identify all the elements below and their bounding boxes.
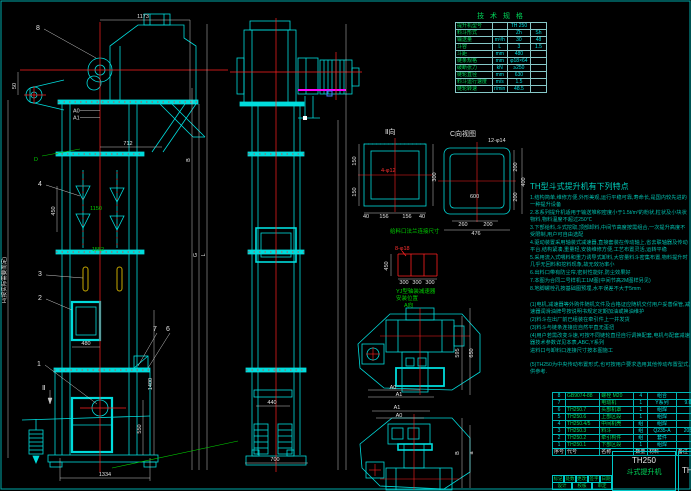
front-view-centerlines	[20, 22, 228, 472]
dim-476: 476	[471, 231, 480, 237]
front-view-dimension-texts: 1173 712 A0 A1 50 450 480 1334 550 1400 …	[0, 14, 207, 478]
table-row: 料斗运行速度 m/s 1.5	[456, 79, 547, 86]
detail-section-II-dims	[359, 144, 433, 213]
table-row: 破断张力 kN ≥250	[456, 65, 547, 72]
dim-a0: A0	[73, 109, 80, 115]
spec-cell	[530, 58, 546, 65]
bom-cell: 4	[634, 393, 648, 400]
bom-cell: 电动机	[600, 400, 634, 407]
dim-550: 550	[137, 424, 143, 433]
title-block-model-box: TH250 斗式提升机	[612, 451, 676, 491]
section-II-marker: Ⅱ	[42, 385, 45, 392]
dim-400: 400	[521, 177, 527, 186]
spec-cell: 30	[507, 37, 530, 44]
bom-cell: TH250.4/5	[566, 421, 600, 428]
spec-cell	[492, 30, 507, 37]
dim-150a: 150	[352, 156, 358, 165]
notes-title: TH型斗式提升机有下列特点	[530, 181, 690, 192]
note-line: (2)料斗在出厂前已组装在牵引件上一并发货	[530, 317, 690, 324]
note-line: 4.驱动装置采用轴装式减速器,直接套装在传动轴上,省去联轴器及传动平台,结构紧凑…	[530, 240, 690, 254]
spec-cell: 提升机型号	[456, 23, 493, 30]
bom-cell	[566, 400, 600, 407]
bom-cell	[676, 407, 691, 414]
bom-cell: Q235-A	[648, 428, 677, 435]
spec-cell: Sh	[530, 30, 546, 37]
spec-cell: 630	[507, 72, 530, 79]
bom-cell: TH250.3	[566, 428, 600, 435]
bom-cell: 组	[634, 428, 648, 435]
bom-cell	[676, 421, 691, 428]
spec-cell: 链条规格	[456, 58, 493, 65]
table-row: 6 TH250.7 头部机罩 1 组焊	[553, 407, 691, 414]
spec-cell: 破断张力	[456, 65, 493, 72]
feature-notes: TH型斗式提升机有下列特点 1.结构简单,维修方便,外形美观,运行平稳可靠,寿命…	[530, 181, 690, 393]
table-row: 提升机型号 TH 250	[456, 23, 547, 30]
dim-650: 650	[469, 348, 475, 357]
spec-cell	[530, 51, 546, 58]
drawing-model: TH250	[613, 456, 675, 465]
dim-A1-top: A1	[396, 392, 403, 398]
technical-spec-table: 技 术 规 格 提升机型号 TH 250 料斗形式 Zh Sh 输送量 m³/h…	[455, 11, 547, 93]
table-row: 链条规格 mm φ18×64	[456, 58, 547, 65]
bom-cell: GB9074-88	[566, 393, 600, 400]
table-row: 输送量 m³/h 30 48	[456, 37, 547, 44]
dim-156a: 156	[379, 214, 388, 220]
spec-cell: mm	[492, 51, 507, 58]
title-block: TH250 斗式提升机 TH2 标记 处数 更改文件号 签字 日期 设计 校核 …	[552, 448, 691, 491]
table-row: 斗距 mm 480	[456, 51, 547, 58]
coupling-note-2: 安装位置	[396, 294, 419, 302]
balloon-7: 7	[153, 326, 157, 333]
bom-cell: 牵引构件	[600, 435, 634, 442]
spec-cell	[530, 23, 546, 30]
bom-cell: 上部区段	[600, 414, 634, 421]
balloon-6: 6	[166, 326, 170, 333]
note-line: (1)电机,减速器等外购件随机文件及合格证应随机交付用户妥善保管,减速器润滑油牌…	[530, 302, 690, 316]
spec-cell: φ18×64	[507, 58, 530, 65]
table-row: 链轮直径 mm 630	[456, 72, 547, 79]
note-line: 8.地脚螺栓孔按基础图预埋,水平误差不大于5mm	[530, 286, 690, 293]
dim-a1: A1	[73, 116, 80, 122]
bom-cell: TH250.2	[566, 435, 600, 442]
bom-cell	[676, 393, 691, 400]
spec-cell: 1.5	[530, 44, 546, 51]
spec-cell: m/s	[492, 79, 507, 86]
dim-50: 50	[12, 83, 18, 89]
feed-flange-title: 给料口法兰连接尺寸	[390, 227, 440, 235]
spec-cell	[530, 65, 546, 72]
table-row: 料斗形式 Zh Sh	[456, 30, 547, 37]
bucket-slot-guides	[83, 267, 122, 291]
bom-cell: TH250.7	[566, 407, 600, 414]
dim-40b: 40	[419, 214, 425, 220]
dim-200: 200	[483, 222, 492, 228]
dim-1150-green: 1150	[90, 206, 102, 212]
cad-sheet: 1173 712 A0 A1 50 450 480 1334 550 1400 …	[0, 0, 691, 491]
note-line: (5)TH250为中央传动布置形式,也可按用户要求选用其他传动布置型式,供参考.	[530, 362, 690, 376]
dim-700: 700	[270, 457, 279, 463]
detail-feed-texts: 给料口法兰连接尺寸 8-φ18 450 300 300 300 YJ型轴装减速器…	[384, 227, 440, 302]
spec-cell	[530, 79, 546, 86]
spec-cell	[530, 72, 546, 79]
note-line: 3.下部给料,斗式挖取,顶部卸料,中间节高度按需组合,一次提升高度不受限制,用户…	[530, 225, 690, 239]
bom-cell: 料斗	[600, 428, 634, 435]
balloon-3: 3	[38, 271, 42, 278]
bom-cell: Y系列	[648, 400, 677, 407]
table-row: 7 电动机 1 Y系列 9.0	[553, 400, 691, 407]
table-row: 3 TH250.3 料斗 组 Q235-A 205	[553, 428, 691, 435]
bom-cell: 2	[553, 435, 566, 442]
bom-cell: 7	[553, 400, 566, 407]
spec-cell: Zh	[507, 30, 530, 37]
spec-cell: 48	[530, 37, 546, 44]
note-line: (4)用户若需改变斗速,可按不同链轮直径自行调换配套,电机与配套减速器技术参数详…	[530, 333, 690, 347]
bom-cell: 螺栓 M20	[600, 393, 634, 400]
bom-cell: 中间机壳	[600, 421, 634, 428]
bom-cell: 1	[634, 407, 648, 414]
bom-cell: 组	[634, 435, 648, 442]
spec-cell: 输送量	[456, 37, 493, 44]
spec-cell: 链轮转速	[456, 86, 493, 93]
dim-B: B	[186, 158, 192, 162]
dim-600: 600	[470, 194, 479, 200]
spec-table-title: 技 术 规 格	[455, 11, 547, 21]
bom-cell: 5	[553, 414, 566, 421]
detail-C-title: C向视图	[450, 129, 476, 138]
balloon-2: 2	[38, 295, 42, 302]
signature-field: 设计	[552, 482, 572, 490]
signature-fields: 设计 校核 审定	[552, 482, 612, 490]
spec-cell: r/min	[492, 86, 507, 93]
dim-A0-top2: A0	[396, 413, 403, 419]
signature-field: 审定	[592, 482, 612, 490]
spec-cell: TH 250	[507, 23, 530, 30]
feed-hole-callout: 8-φ18	[395, 246, 410, 252]
bom-cell	[676, 414, 691, 421]
detail-topA-geometry	[358, 308, 480, 392]
front-view-green-texts: D 1150 1552	[34, 157, 104, 253]
dim-300a: 300	[399, 280, 408, 286]
spec-cell: 链轮直径	[456, 72, 493, 79]
dim-H-note: H(按实际需要而定)	[0, 257, 8, 303]
spec-cell: 3	[507, 44, 530, 51]
spec-cell: 斗容	[456, 44, 493, 51]
spec-cell: mm	[492, 58, 507, 65]
bom-cell: 205	[676, 428, 691, 435]
detail-section-II-centerlines	[358, 138, 432, 212]
dim-L: L	[201, 253, 207, 256]
parts-list: 8 GB9074-88 螺栓 M20 4 组合 7 电动机 1 Y系列 9.0 …	[552, 392, 691, 456]
dim-200a: 200	[513, 162, 519, 171]
signature-field: 校核	[572, 482, 592, 490]
dim-1173: 1173	[137, 14, 149, 20]
table-row: 链轮转速 r/min 48.5	[456, 86, 547, 93]
note-line: (3)料斗与链条连接应自然平直无歪扭	[530, 325, 690, 332]
dim-300b: 300	[412, 280, 421, 286]
section-II-title: Ⅱ向	[385, 127, 395, 136]
bom-cell: 6	[553, 407, 566, 414]
side-view-geometry	[237, 21, 359, 465]
balloon-8: 8	[36, 25, 40, 32]
view-A-title: A向	[404, 301, 413, 309]
detail-feed-geometry	[398, 251, 437, 276]
bom-cell: 组焊	[648, 407, 677, 414]
bom-cell: 组焊	[648, 421, 677, 428]
bom-cell: 头部机罩	[600, 407, 634, 414]
balloon-1: 1	[37, 361, 41, 368]
spec-cell: L	[492, 44, 507, 51]
note-line: 1.结构简单,维修方便,外形美观,运行平稳可靠,寿命长,是国内较先进的一种提升设…	[530, 195, 690, 209]
note-line: 5.采用流入式喂料和重力诱导式卸料,大容量料斗密集布置,物料提升时几乎无回料和挖…	[530, 255, 690, 269]
drawing-name: 斗式提升机	[613, 467, 675, 477]
dim-595: 595	[455, 348, 461, 357]
bom-cell: 9.0	[676, 400, 691, 407]
spec-cell: ≥250	[507, 65, 530, 72]
table-row: 斗容 L 3 1.5	[456, 44, 547, 51]
dim-450: 450	[51, 206, 57, 215]
note-line: 7.本图为合同二号样机工1M图(中间节高2M图样另见)	[530, 278, 690, 285]
spec-cell: 料斗形式	[456, 30, 493, 37]
spec-cell: 48.5	[507, 86, 530, 93]
dim-200b: 200	[513, 192, 519, 201]
note-line: 6.出料口带有防尘帘,密封性能好,防尘效果好	[530, 270, 690, 277]
dim-440: 440	[267, 400, 276, 406]
title-block-right-partial: TH2	[678, 451, 691, 491]
table-row: 5 TH250.6 上部区段 1 组焊	[553, 414, 691, 421]
bom-cell	[676, 435, 691, 442]
bom-cell: 3	[553, 428, 566, 435]
dim-156b: 156	[402, 214, 411, 220]
spec-cell: 1.5	[507, 79, 530, 86]
dim-A1-top2: A1	[394, 405, 401, 411]
bom-cell: 1	[634, 400, 648, 407]
dim-B-top2: B	[455, 451, 461, 455]
dim-300-II: 300	[432, 172, 438, 181]
dim-1400: 1400	[148, 378, 154, 390]
bom-cell: TH250.6	[566, 414, 600, 421]
bom-cell: 组	[634, 421, 648, 428]
dim-480: 480	[81, 341, 90, 347]
bom-cell: 8	[553, 393, 566, 400]
bom-cell: 1	[634, 414, 648, 421]
detail-C-hole-callout: 12-φ14	[488, 138, 506, 144]
spec-cell: kN	[492, 65, 507, 72]
dim-450-feed: 450	[384, 261, 390, 270]
note-line: 进料口与卸料口连接尺寸按本图施工	[530, 348, 690, 355]
bom-cell: 套件	[648, 435, 677, 442]
spec-cell: mm	[492, 72, 507, 79]
dim-300c: 300	[425, 280, 434, 286]
dim-712: 712	[123, 141, 132, 147]
note-line: 2.本系列提升机适用于输送堆积密度小于1.5t/m³的粉状,粒状及小块状物料,物…	[530, 210, 690, 224]
dim-260: 260	[458, 222, 467, 228]
dim-150b: 150	[352, 187, 358, 196]
dim-1552-green: 1552	[92, 247, 104, 253]
spec-cell: 480	[507, 51, 530, 58]
table-row: 2 TH250.2 牵引构件 组 套件	[553, 435, 691, 442]
dim-A0-top: A0	[390, 385, 397, 391]
dim-40a: 40	[363, 214, 369, 220]
spec-cell	[492, 23, 507, 30]
bom-cell: 组焊	[648, 414, 677, 421]
table-row: 4 TH250.4/5 中间机壳 组 组焊	[553, 421, 691, 428]
bom-cell: 4	[553, 421, 566, 428]
balloon-4: 4	[38, 181, 42, 188]
coupling-note-1: YJ型轴装减速器	[396, 287, 436, 295]
section-II-hole-callout: 4-φ12	[381, 168, 396, 174]
table-row: 8 GB9074-88 螺栓 M20 4 组合	[553, 393, 691, 400]
spec-cell: m³/h	[492, 37, 507, 44]
dim-G: G	[193, 253, 199, 257]
dim-1334: 1334	[99, 472, 111, 478]
spec-cell	[530, 86, 546, 93]
spec-cell: 斗距	[456, 51, 493, 58]
view-D-label: D	[34, 157, 38, 163]
spec-cell: 料斗运行速度	[456, 79, 493, 86]
bom-cell: 组合	[648, 393, 677, 400]
